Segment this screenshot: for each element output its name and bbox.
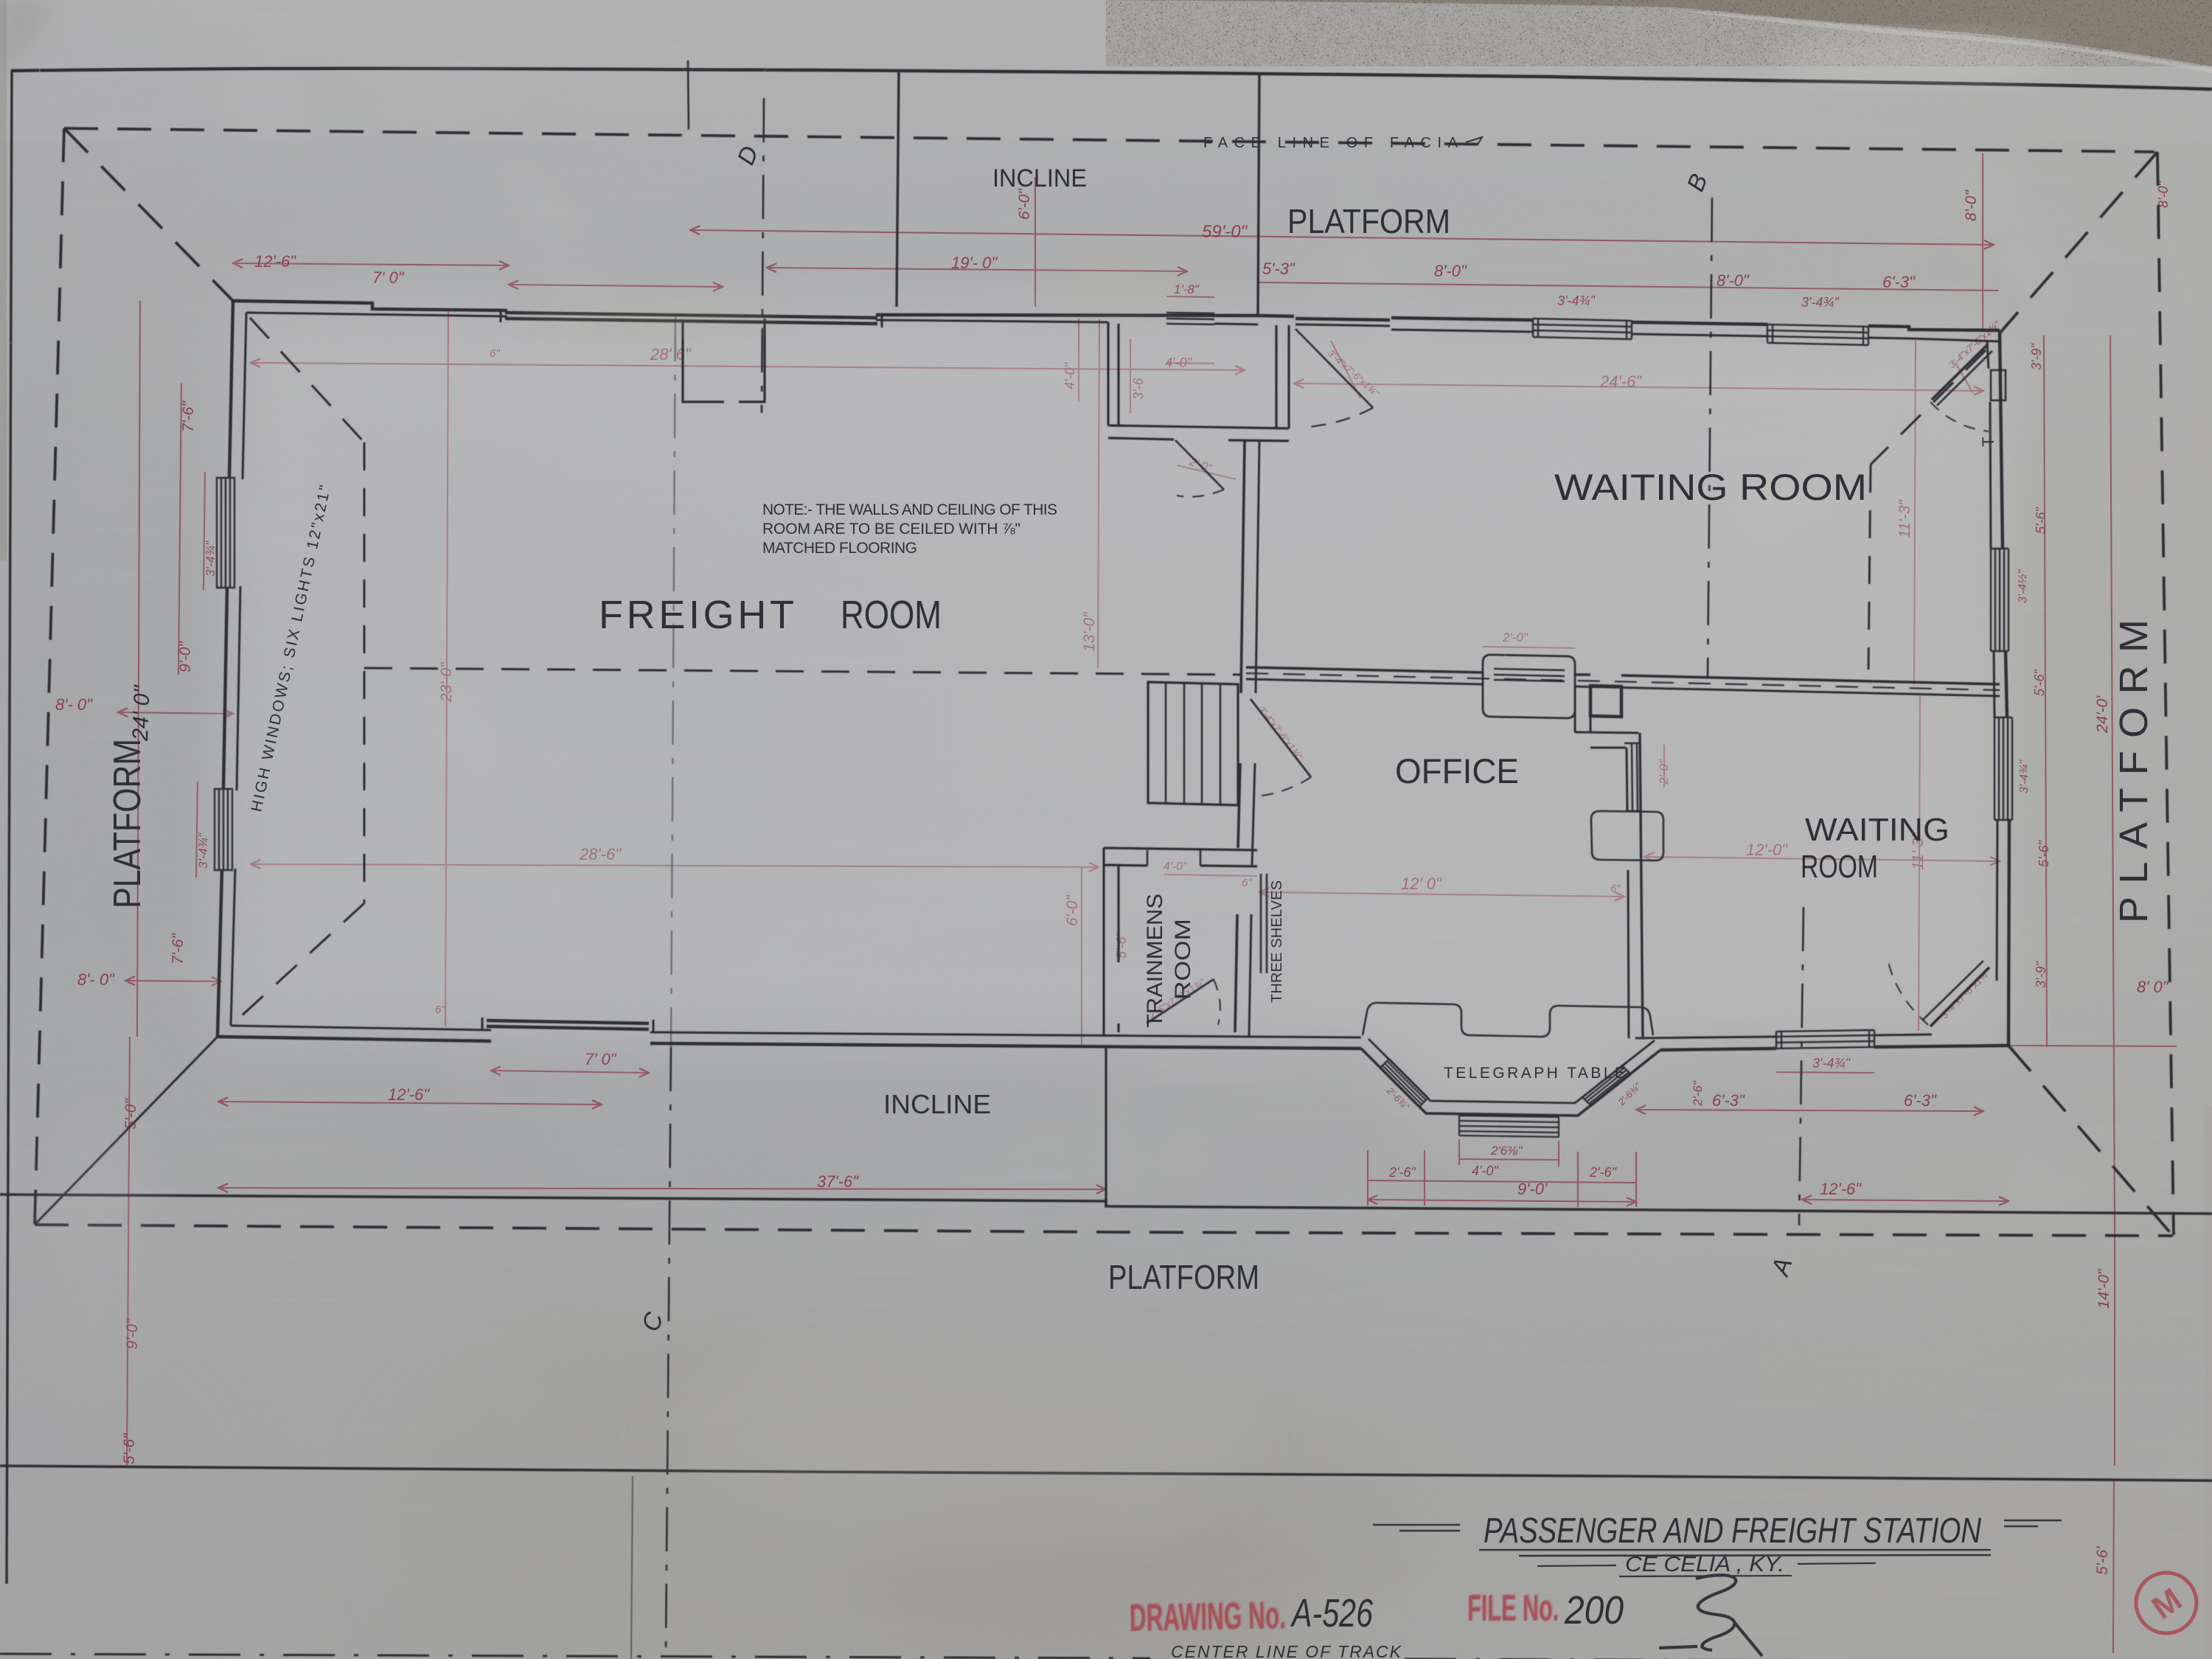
svg-text:37'-6": 37'-6" bbox=[817, 1172, 859, 1191]
svg-text:3'-4½": 3'-4½" bbox=[2017, 568, 2029, 603]
svg-text:3'-9": 3'-9" bbox=[2034, 961, 2048, 988]
svg-text:2'-6": 2'-6" bbox=[1388, 1165, 1416, 1180]
svg-text:8'-0": 8'-0" bbox=[1717, 271, 1750, 290]
svg-text:12'-6": 12'-6" bbox=[388, 1085, 430, 1104]
svg-text:24'-0': 24'-0' bbox=[2094, 695, 2111, 734]
svg-text:6'-0": 6'-0" bbox=[1016, 188, 1033, 220]
svg-text:T: T bbox=[1979, 437, 1997, 447]
svg-text:3'-4¾": 3'-4¾" bbox=[204, 540, 218, 577]
svg-text:7'-6": 7'-6" bbox=[180, 400, 197, 432]
svg-text:WAITING ROOM: WAITING ROOM bbox=[1554, 467, 1867, 508]
svg-text:PLATFORM: PLATFORM bbox=[1108, 1258, 1259, 1296]
svg-text:8'- 0": 8'- 0" bbox=[55, 695, 93, 714]
svg-text:5'-6': 5'-6' bbox=[2094, 1546, 2111, 1575]
svg-text:INCLINE: INCLINE bbox=[992, 164, 1087, 192]
svg-text:PLATFORM: PLATFORM bbox=[1287, 202, 1450, 240]
svg-text:2'-6": 2'-6" bbox=[1589, 1165, 1617, 1180]
svg-text:ROOM ARE TO BE CEILED WITH ⅞": ROOM ARE TO BE CEILED WITH ⅞" bbox=[762, 521, 1020, 538]
svg-text:8'-0": 8'-0" bbox=[1963, 189, 1980, 221]
svg-text:6'-3": 6'-3" bbox=[1712, 1091, 1745, 1110]
svg-text:ROOM: ROOM bbox=[1801, 849, 1878, 885]
svg-text:8' 0": 8' 0" bbox=[2137, 978, 2169, 996]
svg-text:NOTE:- THE WALLS AND CEILING: NOTE:- THE WALLS AND CEILING OF THIS bbox=[762, 501, 1057, 518]
svg-text:9'-0': 9'-0' bbox=[1517, 1180, 1548, 1198]
svg-text:WAITING: WAITING bbox=[1805, 812, 1950, 848]
svg-text:5'-6": 5'-6" bbox=[2034, 507, 2048, 534]
svg-text:24' 0": 24' 0" bbox=[128, 684, 155, 742]
svg-text:200: 200 bbox=[1564, 1588, 1624, 1632]
svg-text:6'-3": 6'-3" bbox=[1882, 273, 1916, 291]
svg-text:MATCHED FLOORING: MATCHED FLOORING bbox=[762, 540, 917, 557]
svg-text:8'-0": 8'-0" bbox=[1434, 262, 1467, 280]
svg-text:5'-6": 5'-6" bbox=[2037, 840, 2051, 867]
svg-text:2'-6": 2'-6" bbox=[1691, 1080, 1705, 1107]
svg-text:59'-0": 59'-0" bbox=[1202, 222, 1248, 242]
svg-text:CE CELIA , KY.: CE CELIA , KY. bbox=[1625, 1553, 1784, 1576]
svg-text:8'- 0": 8'- 0" bbox=[77, 970, 115, 989]
svg-text:A-526: A-526 bbox=[1290, 1591, 1374, 1635]
svg-text:CENTER LINE OF TRACK: CENTER LINE OF TRACK bbox=[1171, 1642, 1402, 1659]
svg-text:FILE No.: FILE No. bbox=[1469, 1586, 1560, 1627]
svg-text:FREIGHT: FREIGHT bbox=[599, 593, 794, 637]
svg-text:7'-6": 7'-6" bbox=[170, 933, 187, 964]
svg-text:5'-6": 5'-6" bbox=[2032, 669, 2047, 696]
svg-text:PASSENGER AND FREIGHT STATION: PASSENGER AND FREIGHT STATION bbox=[1484, 1512, 1981, 1551]
svg-text:PLATFORM: PLATFORM bbox=[106, 739, 149, 908]
svg-text:TELEGRAPH TABLE: TELEGRAPH TABLE bbox=[1444, 1065, 1625, 1082]
svg-text:5'-6": 5'-6" bbox=[121, 1433, 138, 1464]
svg-text:ROOM: ROOM bbox=[1171, 919, 1195, 1000]
svg-text:19'- 0": 19'- 0" bbox=[951, 254, 998, 272]
svg-text:ROOM: ROOM bbox=[841, 593, 942, 637]
svg-text:6'-3": 6'-3" bbox=[1904, 1091, 1937, 1110]
svg-text:3'-4¾": 3'-4¾" bbox=[1801, 295, 1840, 310]
svg-text:14'-0": 14'-0" bbox=[2096, 1268, 2112, 1309]
svg-text:3'-4¾": 3'-4¾" bbox=[1812, 1056, 1851, 1071]
svg-text:9'-0": 9'-0" bbox=[177, 641, 194, 672]
svg-text:12'-6": 12'-6" bbox=[1820, 1180, 1862, 1198]
svg-text:INCLINE: INCLINE bbox=[883, 1089, 991, 1119]
svg-text:2'6⅜": 2'6⅜" bbox=[1490, 1144, 1523, 1158]
svg-text:3'-4¾": 3'-4¾" bbox=[1557, 293, 1596, 308]
svg-text:7' 0": 7' 0" bbox=[585, 1050, 617, 1068]
svg-text:THREE SHELVES: THREE SHELVES bbox=[1269, 880, 1285, 1003]
svg-text:3'-9": 3'-9" bbox=[2029, 343, 2044, 370]
svg-text:3'-4¾": 3'-4¾" bbox=[196, 832, 210, 869]
svg-text:OFFICE: OFFICE bbox=[1395, 751, 1519, 790]
svg-text:TRAINMENS: TRAINMENS bbox=[1143, 894, 1167, 1028]
svg-text:4'-0": 4'-0" bbox=[1472, 1164, 1499, 1178]
svg-text:3'-4¾": 3'-4¾" bbox=[2018, 759, 2031, 793]
svg-text:7' 0": 7' 0" bbox=[372, 268, 405, 287]
svg-text:DRAWING No.: DRAWING No. bbox=[1130, 1593, 1287, 1638]
svg-text:5'-3": 5'-3" bbox=[1262, 260, 1295, 278]
